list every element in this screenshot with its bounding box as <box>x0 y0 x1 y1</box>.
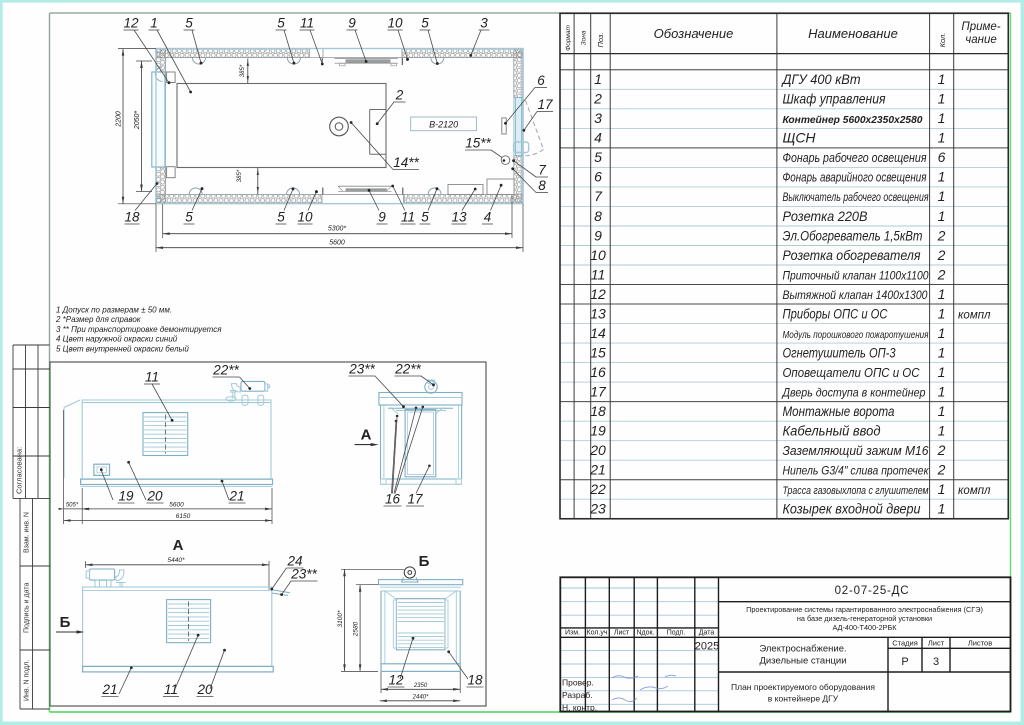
svg-text:5300*: 5300* <box>328 226 347 233</box>
svg-text:23**: 23** <box>290 567 317 582</box>
svg-text:16: 16 <box>385 492 401 507</box>
svg-text:21: 21 <box>589 462 606 478</box>
svg-text:11: 11 <box>401 210 415 225</box>
svg-text:в контейнере ДГУ: в контейнере ДГУ <box>768 694 839 704</box>
svg-text:А: А <box>361 427 372 444</box>
svg-text:11: 11 <box>164 682 178 697</box>
svg-text:4: 4 <box>484 210 492 225</box>
svg-text:12: 12 <box>123 16 139 31</box>
svg-text:ДГУ 400 кВт: ДГУ 400 кВт <box>781 71 861 87</box>
svg-text:14: 14 <box>590 325 606 341</box>
svg-text:Монтажные ворота: Монтажные ворота <box>783 404 895 419</box>
svg-text:Приме-: Приме- <box>961 21 1000 33</box>
svg-text:8: 8 <box>594 208 602 224</box>
svg-text:6: 6 <box>537 73 545 88</box>
svg-text:Козырек входной двери: Козырек входной двери <box>783 502 921 517</box>
svg-text:22: 22 <box>589 481 606 497</box>
svg-text:Формат: Формат <box>565 25 572 51</box>
svg-text:Листов: Листов <box>968 639 992 648</box>
svg-text:2: 2 <box>937 442 946 458</box>
svg-text:2350: 2350 <box>413 683 428 689</box>
svg-text:22**: 22** <box>212 363 239 378</box>
svg-text:2 *Размер для справок: 2 *Размер для справок <box>55 315 142 324</box>
svg-text:1: 1 <box>938 169 946 185</box>
svg-text:6: 6 <box>594 169 602 185</box>
svg-text:В-2120: В-2120 <box>429 120 458 130</box>
svg-text:10: 10 <box>297 210 313 225</box>
svg-text:Эл.Обогреватель 1,5кВт: Эл.Обогреватель 1,5кВт <box>783 228 923 243</box>
svg-text:Шкаф управления: Шкаф управления <box>783 91 886 107</box>
svg-text:Дизельные станции: Дизельные станции <box>759 656 846 667</box>
svg-text:3: 3 <box>480 16 488 31</box>
svg-text:9: 9 <box>348 16 356 31</box>
svg-text:17: 17 <box>590 383 607 399</box>
svg-text:Электроснабжение.: Электроснабжение. <box>759 644 846 655</box>
svg-text:1: 1 <box>938 286 946 302</box>
svg-text:9: 9 <box>378 210 386 225</box>
svg-text:Розетка обогревателя: Розетка обогревателя <box>783 248 921 263</box>
svg-text:2025: 2025 <box>695 641 719 653</box>
svg-text:Подпись и дата: Подпись и дата <box>24 583 31 633</box>
svg-text:1: 1 <box>594 71 602 87</box>
svg-text:Взам. инв. N: Взам. инв. N <box>24 512 31 553</box>
svg-text:22**: 22** <box>394 362 421 377</box>
svg-text:13: 13 <box>451 210 467 225</box>
svg-text:Стадия: Стадия <box>892 639 918 648</box>
svg-text:Провер.: Провер. <box>562 678 594 688</box>
svg-text:15**: 15** <box>465 136 491 151</box>
svg-text:2050*: 2050* <box>134 111 141 131</box>
svg-text:2: 2 <box>937 247 946 263</box>
svg-text:Приборы ОПС и ОС: Приборы ОПС и ОС <box>783 306 888 321</box>
svg-text:Р: Р <box>901 656 908 668</box>
svg-text:Нипель G3/4" слива протечек: Нипель G3/4" слива протечек <box>783 464 930 478</box>
svg-text:5: 5 <box>594 149 602 165</box>
svg-text:5: 5 <box>421 210 429 225</box>
svg-text:1 Допуск по размерам ± 50 мм.: 1 Допуск по размерам ± 50 мм. <box>56 306 172 315</box>
svg-text:23: 23 <box>589 501 606 517</box>
svg-text:18: 18 <box>124 210 140 225</box>
svg-text:Инв. N подл.: Инв. N подл. <box>24 660 31 701</box>
svg-text:4 Цвет наружной окраски синий: 4 Цвет наружной окраски синий <box>56 335 178 344</box>
svg-text:Н. контр.: Н. контр. <box>562 703 597 713</box>
svg-text:Подп.: Подп. <box>667 630 686 637</box>
svg-text:Поз.: Поз. <box>596 32 605 47</box>
svg-text:Розетка 220В: Розетка 220В <box>783 208 868 224</box>
svg-text:на базе дизель-генераторной ус: на базе дизель-генераторной установки <box>797 614 932 623</box>
svg-text:Согласована:: Согласована: <box>15 447 24 494</box>
svg-text:Дата: Дата <box>699 630 715 637</box>
svg-text:20: 20 <box>146 489 163 504</box>
svg-text:Наименование: Наименование <box>808 26 898 41</box>
svg-text:385*: 385* <box>240 64 246 77</box>
svg-text:Разраб.: Разраб. <box>562 690 593 700</box>
svg-text:2: 2 <box>937 462 946 478</box>
svg-text:1: 1 <box>938 110 946 126</box>
svg-text:11: 11 <box>145 370 159 385</box>
svg-text:1: 1 <box>150 16 158 31</box>
svg-text:10: 10 <box>387 16 403 31</box>
svg-text:5 Цвет внутренней окраски белы: 5 Цвет внутренней окраски белый <box>56 344 189 353</box>
svg-text:505*: 505* <box>66 503 79 509</box>
svg-text:17: 17 <box>537 97 553 112</box>
svg-text:19: 19 <box>590 422 606 438</box>
svg-text:9: 9 <box>594 227 602 243</box>
svg-text:21: 21 <box>101 682 117 697</box>
svg-text:20: 20 <box>196 682 213 697</box>
svg-text:2: 2 <box>937 266 946 282</box>
svg-text:Б: Б <box>60 614 71 631</box>
svg-text:18: 18 <box>467 673 483 688</box>
svg-text:1: 1 <box>938 130 946 146</box>
svg-text:5: 5 <box>277 210 285 225</box>
svg-text:19: 19 <box>118 489 134 504</box>
svg-text:Б: Б <box>419 553 430 570</box>
svg-text:1: 1 <box>938 422 946 438</box>
svg-text:Дверь доступа в контейнер: Дверь доступа в контейнер <box>781 385 926 399</box>
svg-text:Заземляющий зажим М16: Заземляющий зажим М16 <box>783 443 930 458</box>
svg-text:А: А <box>173 537 184 554</box>
svg-text:1: 1 <box>938 188 946 204</box>
svg-text:2440*: 2440* <box>412 695 429 701</box>
svg-text:2: 2 <box>593 91 602 107</box>
svg-text:1: 1 <box>938 481 946 497</box>
svg-text:компл: компл <box>958 485 991 497</box>
svg-text:ЩСН: ЩСН <box>783 130 817 146</box>
svg-text:2: 2 <box>395 88 404 103</box>
svg-text:2: 2 <box>937 227 946 243</box>
svg-text:5600: 5600 <box>329 240 345 247</box>
svg-text:1: 1 <box>938 364 946 380</box>
svg-text:8: 8 <box>538 178 546 193</box>
svg-text:15: 15 <box>590 344 606 360</box>
svg-text:Приточный клапан 1100х1100: Приточный клапан 1100х1100 <box>783 268 929 282</box>
svg-text:23**: 23** <box>348 362 375 377</box>
svg-text:20: 20 <box>589 442 606 458</box>
svg-text:18: 18 <box>590 403 606 419</box>
svg-text:5: 5 <box>185 210 193 225</box>
svg-text:2200: 2200 <box>116 111 123 128</box>
svg-text:13: 13 <box>590 305 606 321</box>
svg-text:12: 12 <box>590 286 606 302</box>
svg-text:10: 10 <box>590 247 606 263</box>
svg-text:1: 1 <box>938 305 946 321</box>
svg-text:1: 1 <box>938 208 946 224</box>
svg-text:6150: 6150 <box>176 513 191 520</box>
svg-text:1: 1 <box>938 71 946 87</box>
svg-text:компл: компл <box>958 309 991 321</box>
svg-text:7: 7 <box>538 163 546 178</box>
svg-text:3100*: 3100* <box>337 610 344 627</box>
svg-text:Лист: Лист <box>928 639 945 648</box>
svg-text:1: 1 <box>938 91 946 107</box>
svg-text:6: 6 <box>938 149 946 165</box>
svg-text:Проектирование системы гаранти: Проектирование системы гарантированного … <box>746 605 983 614</box>
svg-text:5440*: 5440* <box>168 557 185 564</box>
svg-text:Фонарь рабочего освещения: Фонарь рабочего освещения <box>783 150 927 165</box>
svg-text:1: 1 <box>938 383 946 399</box>
svg-text:17: 17 <box>407 492 423 507</box>
svg-text:чание: чание <box>965 34 996 46</box>
svg-text:Контейнер 5600х2350х2580: Контейнер 5600х2350х2580 <box>783 114 923 126</box>
svg-text:14**: 14** <box>393 155 419 170</box>
svg-text:5600: 5600 <box>169 502 184 509</box>
svg-text:5: 5 <box>277 16 285 31</box>
svg-text:4: 4 <box>594 130 602 146</box>
svg-text:Фонарь аварийного освещения: Фонарь аварийного освещения <box>783 171 927 185</box>
svg-text:Выключатель рабочего освещения: Выключатель рабочего освещения <box>783 192 929 204</box>
svg-text:Зона: Зона <box>581 30 588 45</box>
svg-text:Модуль порошкового пожаротушен: Модуль порошкового пожаротушения <box>783 329 929 341</box>
svg-text:02-07-25-ДС: 02-07-25-ДС <box>835 585 910 597</box>
svg-text:2580: 2580 <box>353 621 360 637</box>
svg-text:3 ** При транспортировке демон: 3 ** При транспортировке демонтируется <box>56 325 222 334</box>
svg-text:21: 21 <box>228 489 244 504</box>
svg-text:385*: 385* <box>237 169 243 182</box>
svg-text:Обозначение: Обозначение <box>654 26 734 41</box>
svg-text:Лист: Лист <box>614 630 630 637</box>
svg-text:11: 11 <box>300 16 314 31</box>
svg-text:1: 1 <box>938 403 946 419</box>
svg-text:Кол.: Кол. <box>938 33 947 48</box>
svg-text:Кабельный ввод: Кабельный ввод <box>783 423 882 438</box>
svg-text:3: 3 <box>594 110 602 126</box>
svg-text:5: 5 <box>421 16 429 31</box>
svg-text:Оповещатели ОПС и ОС: Оповещатели ОПС и ОС <box>783 365 921 380</box>
svg-text:1: 1 <box>938 501 946 517</box>
svg-text:Nдок.: Nдок. <box>636 630 654 637</box>
svg-text:16: 16 <box>590 364 606 380</box>
svg-text:Вытяжной клапан 1400х1300: Вытяжной клапан 1400х1300 <box>783 288 928 302</box>
svg-text:3: 3 <box>933 656 939 668</box>
svg-text:АД-400-Т400-2РБК: АД-400-Т400-2РБК <box>832 623 897 632</box>
svg-text:11: 11 <box>591 266 606 282</box>
svg-text:План проектируемого оборудован: План проектируемого оборудования <box>731 682 875 692</box>
svg-text:Кол.уч: Кол.уч <box>587 630 608 637</box>
svg-text:Изм.: Изм. <box>565 630 580 637</box>
svg-text:1: 1 <box>938 325 946 341</box>
svg-text:Огнетушитель ОП-3: Огнетушитель ОП-3 <box>783 345 896 360</box>
svg-text:1: 1 <box>938 344 946 360</box>
svg-text:Трасса газовыхлопа с глушителе: Трасса газовыхлопа с глушителем <box>783 485 929 497</box>
svg-text:5: 5 <box>185 16 193 31</box>
svg-text:7: 7 <box>594 188 603 204</box>
